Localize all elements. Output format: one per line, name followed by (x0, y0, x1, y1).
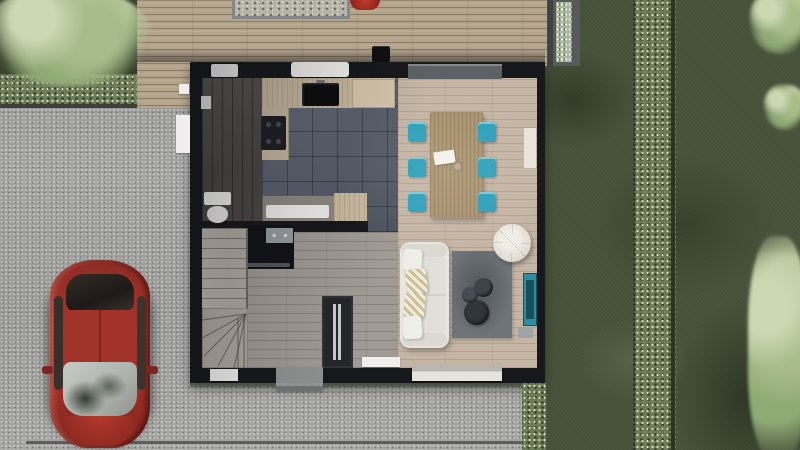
bowl-on-table (452, 161, 463, 172)
car-mirror (147, 366, 158, 374)
aerial-floor-plan-render: Aerial top-down 3D render of a house gro… (0, 0, 800, 450)
closet-cabinet (266, 228, 293, 243)
toilet-bowl (207, 206, 228, 223)
stair-winder-turn (202, 308, 248, 368)
car-side-window (54, 296, 63, 390)
car-mirror (42, 366, 53, 374)
house-edge-planting (190, 383, 523, 387)
wc-wall-fixture (201, 96, 211, 109)
round-pouf (493, 224, 531, 262)
tree (748, 236, 800, 450)
kitchen-cooktop (261, 116, 286, 150)
island-trough-sink (266, 205, 329, 218)
coffee-table (462, 287, 478, 303)
window-sill (179, 84, 189, 94)
deck-black-box (372, 46, 390, 62)
dining-chair (478, 122, 496, 142)
dining-chair (478, 157, 496, 177)
kitchen-cabinet (352, 79, 395, 108)
parked-car (44, 258, 156, 450)
window-sill (176, 115, 190, 153)
side-table (518, 327, 533, 338)
stair-upper-flight (202, 228, 246, 308)
window-sill (362, 357, 400, 367)
sofa-pillow (402, 315, 423, 339)
car-rear-window (66, 274, 134, 312)
window-sill (291, 62, 349, 77)
island-end-cabinet (334, 193, 367, 223)
kitchen-faucet (316, 80, 325, 83)
roof-shadow (137, 48, 545, 62)
porch-step (276, 367, 323, 390)
window-sill (210, 369, 238, 381)
door-handle (333, 304, 336, 360)
window-sill (524, 128, 536, 168)
kitchen-sink (302, 83, 339, 106)
sofa-pillow-striped (405, 268, 429, 295)
deck-planter-box (232, 0, 350, 19)
living-room-window (412, 365, 502, 381)
door-handle (338, 304, 341, 360)
dining-chair (408, 192, 426, 212)
car-windshield (63, 362, 137, 416)
fence-line (671, 0, 675, 450)
media-console-shelf (526, 280, 534, 319)
hedge-strip-right (633, 0, 676, 450)
car-side-window (137, 296, 146, 390)
dining-chair (408, 157, 426, 177)
dining-chair (478, 192, 496, 212)
hedge-strip-bottom (522, 383, 546, 450)
dining-window (408, 64, 502, 79)
closet-door-edge (246, 263, 290, 267)
sofa-seat-cushions (424, 257, 446, 333)
window-sill (211, 64, 238, 77)
tree (764, 84, 800, 130)
car-roof (64, 310, 136, 364)
coffee-table (464, 300, 489, 325)
side-planter-flowers (556, 2, 572, 62)
toilet-tank (204, 192, 231, 205)
dining-chair (408, 122, 426, 142)
